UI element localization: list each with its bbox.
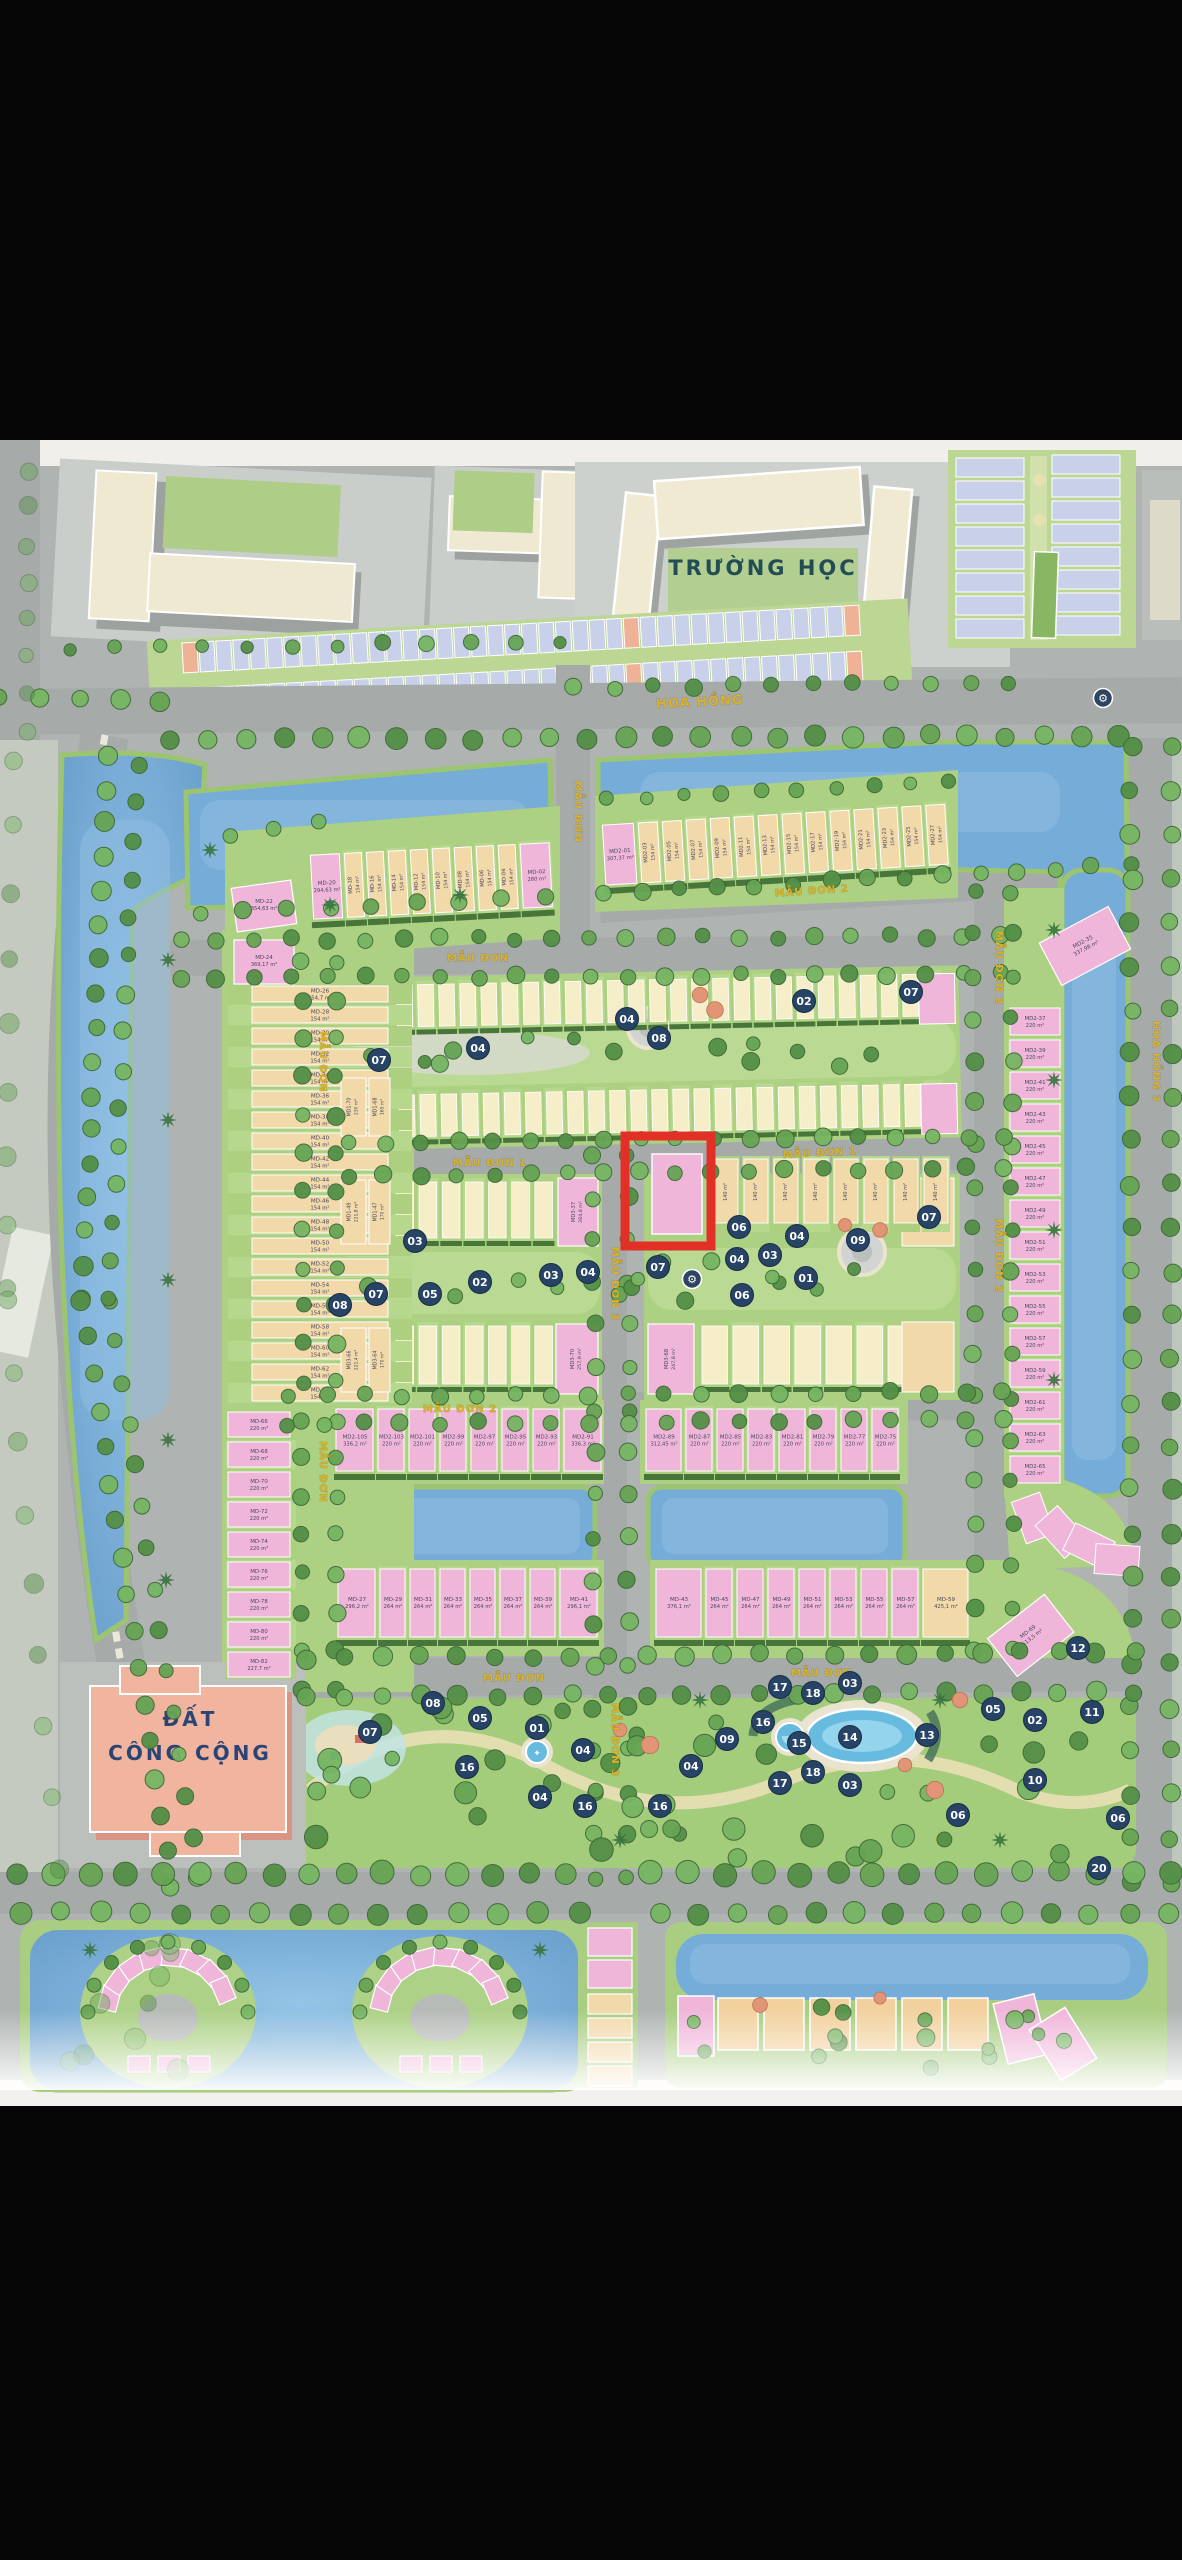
site-plan-map: TRƯỜNG HỌC bbox=[0, 0, 1182, 2560]
masterplan-screenshot: TRƯỜNG HỌC bbox=[0, 0, 1182, 2560]
photo-haze bbox=[0, 440, 1182, 2106]
bottom-fade bbox=[0, 2010, 1182, 2090]
